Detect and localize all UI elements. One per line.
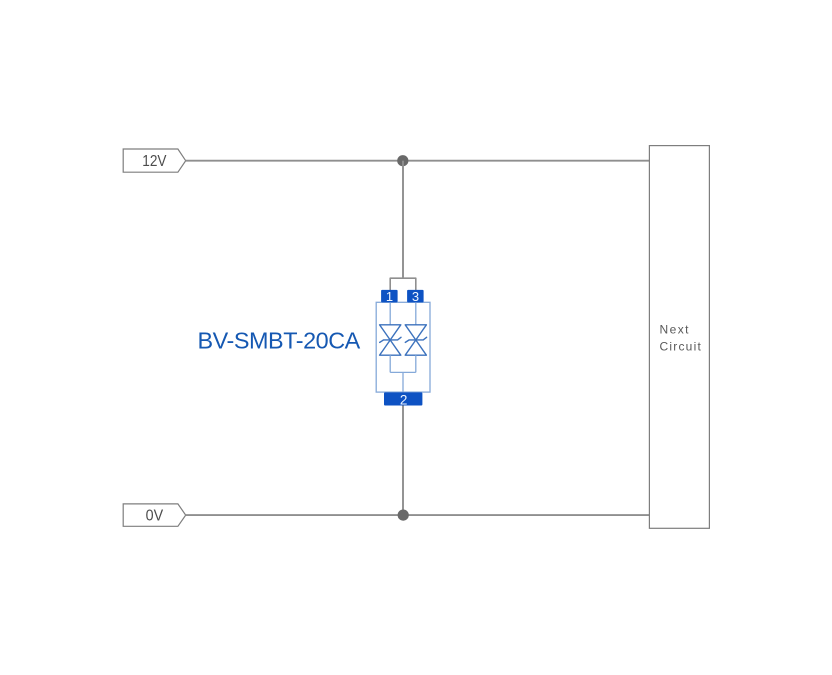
svg-text:12V: 12V [142,153,167,170]
svg-text:Next: Next [660,323,690,337]
svg-text:2: 2 [400,392,408,407]
svg-text:0V: 0V [146,508,164,525]
svg-text:3: 3 [412,289,419,304]
svg-text:1: 1 [386,289,393,304]
svg-text:BV-SMBT-20CA: BV-SMBT-20CA [198,328,361,354]
svg-text:Circuit: Circuit [660,340,702,354]
